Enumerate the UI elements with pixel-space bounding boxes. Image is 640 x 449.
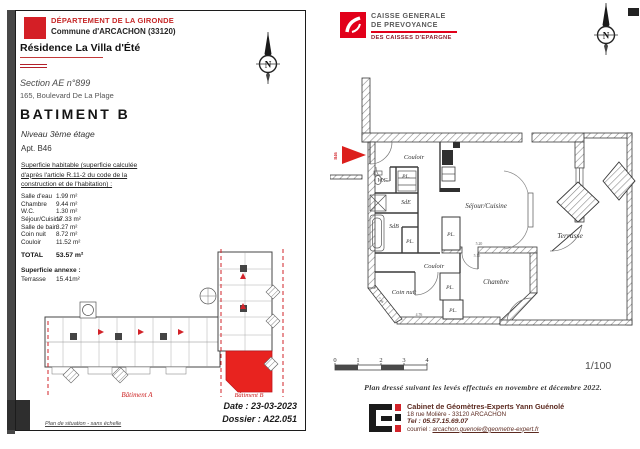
compass-icon: N xyxy=(254,31,282,85)
row-label: W.C. xyxy=(21,208,35,215)
kitchen-units xyxy=(440,142,460,192)
compass-north-letter: N xyxy=(265,60,272,70)
dim-label: 5.15 xyxy=(474,254,481,258)
table-row: Coin nuit8.72 m² xyxy=(21,231,141,239)
batiment-a-footprint xyxy=(45,288,220,374)
floor-level: Niveau 3ème étage xyxy=(21,129,95,139)
plan-sheet: DÉPARTEMENT DE LA GIRONDE Commune d'ARCA… xyxy=(0,0,640,449)
situation-plan: Bâtiment A Bâtiment B xyxy=(40,245,300,400)
row-label: Salle de bain xyxy=(21,224,57,231)
row-value: 1.30 m² xyxy=(56,208,77,215)
cadastre-section: Section AE n°899 xyxy=(20,78,90,88)
dim-label: 4.76 xyxy=(416,313,423,317)
surface-table: Salle d'eau1.99 m² Chambre9.44 m² W.C.1.… xyxy=(21,193,141,247)
room-coin-nuit: Coin nuit xyxy=(392,289,417,296)
scale-tick-0: 0 xyxy=(333,357,336,364)
surface-note-line1: Superficie habitable (superficie calculé… xyxy=(21,161,137,171)
table-row: Salle de bain3.27 m² xyxy=(21,224,141,232)
room-chambre: Chambre xyxy=(483,278,509,286)
cabinet-email-line: courriel : arcachon.guenole@geometre-exp… xyxy=(407,426,564,434)
scale-tick-3: 3 xyxy=(402,357,405,364)
room-couloir-upper: Couloir xyxy=(404,154,425,161)
department-line: DÉPARTEMENT DE LA GIRONDE xyxy=(51,16,174,25)
batiment-a-label: Bâtiment A xyxy=(121,391,153,399)
highlighted-apartment-b46 xyxy=(226,351,272,392)
entry-arrow-icon xyxy=(342,146,366,164)
surface-note-line3: construction et de l'habitation) : xyxy=(21,180,137,190)
dossier-line: Dossier : A22.051 xyxy=(195,414,297,424)
row-label: Salle d'eau xyxy=(21,193,52,200)
table-row: Salle d'eau1.99 m² xyxy=(21,193,141,201)
room-labels: Couloir W.C. PL. SdE SdB PL. Séjour/Cuis… xyxy=(377,154,583,314)
compass-north-letter: N xyxy=(603,31,610,41)
cabinet-email: arcachon.guenole@geometre-expert.fr xyxy=(432,426,538,433)
scale-bar: 0 1 2 3 4 xyxy=(331,355,435,375)
caisse-epargne-logo-icon xyxy=(340,12,366,38)
scale-tick-4: 4 xyxy=(425,357,429,364)
email-label: courriel : xyxy=(407,426,432,433)
row-value: 8.72 m² xyxy=(56,231,77,238)
room-sejour: Séjour/Cuisine xyxy=(465,202,507,210)
double-rule-bottom xyxy=(20,67,47,69)
room-pl: PL. xyxy=(405,239,414,245)
situation-caption: Plan de situation - sans échelle xyxy=(45,421,121,427)
table-row: Chambre9.44 m² xyxy=(21,201,141,209)
batiment-b-label: Bâtiment B xyxy=(234,392,263,399)
row-value: 1.99 m² xyxy=(56,193,77,200)
surface-note: Superficie habitable (superficie calculé… xyxy=(21,161,137,190)
top-right-corner-mark xyxy=(628,8,639,16)
room-sdb: SdB xyxy=(389,224,399,230)
table-row: W.C.1.30 m² xyxy=(21,208,141,216)
dim-label: 5.20 xyxy=(476,242,483,246)
survey-note: Plan dressé suivant les levés effectués … xyxy=(330,383,636,392)
building-title: BATIMENT B xyxy=(20,106,130,122)
room-sde: SdE xyxy=(401,200,411,206)
department-logo xyxy=(24,17,46,39)
terrace-pillars xyxy=(557,162,635,222)
row-label: Chambre xyxy=(21,201,47,208)
room-pl: PL. xyxy=(445,285,454,291)
caisse-line2: DE PREVOYANCE xyxy=(371,21,457,30)
residence-title: Résidence La Villa d'Été xyxy=(20,42,140,54)
bay-sliding-door xyxy=(504,171,533,249)
scale-ratio: 1/100 xyxy=(585,360,611,372)
row-label: Couloir xyxy=(21,239,41,246)
scale-tick-2: 2 xyxy=(379,357,382,364)
cabinet-block: Cabinet de Géomètres-Experts Yann Guénol… xyxy=(407,403,564,433)
cabinet-name: Cabinet de Géomètres-Experts Yann Guénol… xyxy=(407,403,564,411)
floor-plan: B46 Couloir W.C. PL. SdE SdB PL. Séjour/… xyxy=(330,75,640,355)
scale-tick-1: 1 xyxy=(356,357,359,364)
row-label: Coin nuit xyxy=(21,231,46,238)
commune-line: Commune d'ARCACHON (33120) xyxy=(51,27,176,36)
surface-note-line2: d'après l'article R.11-2 du code de la xyxy=(21,171,137,181)
room-pl: PL. xyxy=(448,308,457,314)
caisse-line3: DES CAISSES D'EPARGNE xyxy=(371,34,457,43)
date-line: Date : 23-03-2023 xyxy=(195,401,297,411)
double-rule-top xyxy=(20,64,47,66)
room-couloir-lower: Couloir xyxy=(424,263,445,270)
room-wc: W.C. xyxy=(377,178,388,184)
room-pl: PL. xyxy=(401,174,410,180)
room-terrasse: Terrasse xyxy=(557,231,583,240)
row-value: 3.27 m² xyxy=(56,224,77,231)
entry-apartment-label: B46 xyxy=(333,152,338,160)
row-value: 9.44 m² xyxy=(56,201,77,208)
batiment-b-footprint xyxy=(218,252,272,351)
caisse-wordmark: CAISSE GENERALE DE PREVOYANCE DES CAISSE… xyxy=(371,12,457,43)
caisse-red-rule xyxy=(371,31,457,33)
apartment-number: Apt. B46 xyxy=(21,144,52,153)
room-pl: PL. xyxy=(446,232,455,238)
cabinet-phone: Tel : 05.57.15.69.07 xyxy=(407,418,564,426)
table-row: Séjour/Cuisine17.33 m² xyxy=(21,216,141,224)
row-value: 17.33 m² xyxy=(56,216,81,223)
geometre-logo-icon xyxy=(368,403,402,433)
compass-icon: N xyxy=(592,2,620,56)
scan-edge-strip xyxy=(7,10,15,434)
cabinet-address: 18 rue Molière - 33120 ARCACHON xyxy=(407,411,564,419)
title-underline xyxy=(20,57,103,58)
street-address: 165, Boulevard De La Plage xyxy=(20,91,114,100)
scale-ticks: 0 1 2 3 4 xyxy=(333,357,429,364)
